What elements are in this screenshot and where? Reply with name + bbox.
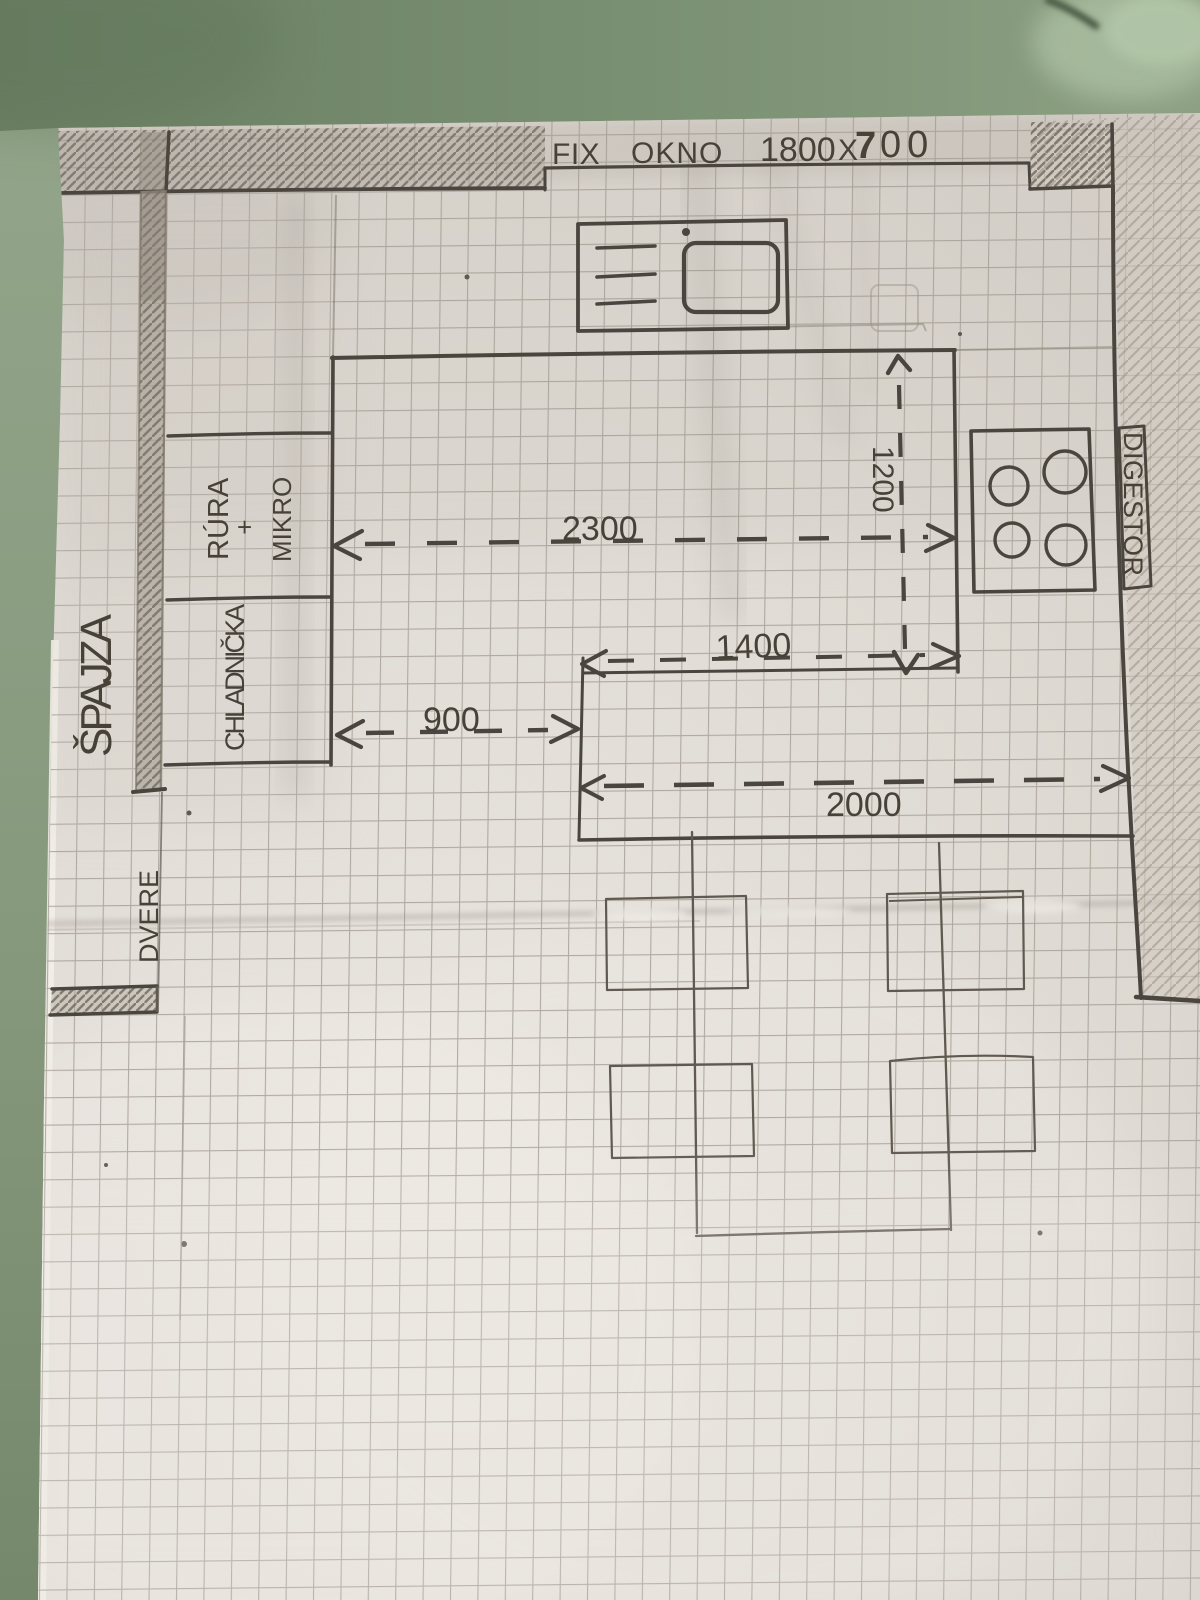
svg-text:OKNO: OKNO <box>631 137 723 170</box>
svg-text:MIKRO: MIKRO <box>267 477 297 562</box>
svg-text:FIX: FIX <box>552 138 600 171</box>
svg-text:1800: 1800 <box>760 131 836 169</box>
svg-text:+: + <box>237 512 252 542</box>
svg-text:2000: 2000 <box>826 786 902 824</box>
svg-text:ŠPAJZA: ŠPAJZA <box>71 613 121 757</box>
svg-text:DVERE: DVERE <box>134 870 164 963</box>
svg-text:00: 00 <box>880 124 934 166</box>
svg-text:2300: 2300 <box>562 510 638 548</box>
svg-text:900: 900 <box>423 701 480 739</box>
svg-text:CHLADNIČKA: CHLADNIČKA <box>219 604 250 751</box>
svg-text:DIGESTOR: DIGESTOR <box>1118 432 1148 577</box>
svg-text:1200: 1200 <box>866 446 899 513</box>
svg-text:RÚRA: RÚRA <box>202 477 235 560</box>
svg-text:1400: 1400 <box>715 626 792 667</box>
svg-text:7: 7 <box>855 125 876 167</box>
